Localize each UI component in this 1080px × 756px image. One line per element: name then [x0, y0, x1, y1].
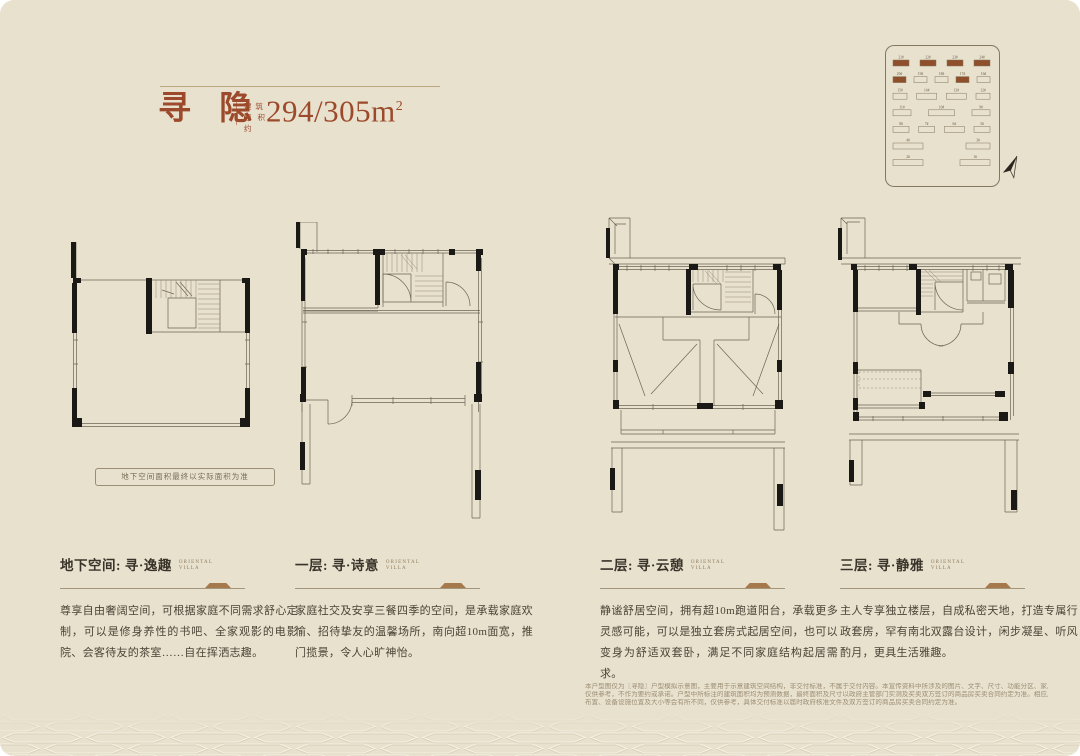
- section-rule: [295, 582, 480, 589]
- section-subtitle: ORIENTAL VILLA: [179, 560, 213, 572]
- rule-accent: [205, 583, 231, 588]
- wave-fade: [0, 710, 1080, 736]
- site-plan-building: [893, 110, 911, 116]
- section-rule: [600, 582, 785, 589]
- site-plan-building: [917, 93, 937, 99]
- site-plan-building: [974, 126, 990, 132]
- section-subtitle: ORIENTAL VILLA: [931, 560, 965, 572]
- compass-icon: [998, 151, 1027, 183]
- rule-accent: [985, 583, 1011, 588]
- section-title: 三层: 寻·静雅: [840, 558, 924, 574]
- site-plan-building: [966, 143, 990, 149]
- site-plan-diagram: 21#22#23#24#20#19#18#17#16#15#14#13#12#1…: [886, 46, 997, 184]
- area-label: 建 筑 面积约: [244, 101, 266, 134]
- rule-accent: [440, 583, 466, 588]
- section-subtitle: ORIENTAL VILLA: [691, 560, 725, 572]
- site-plan-building-label: 23#: [952, 56, 958, 60]
- site-plan-building-label: 7#: [925, 122, 929, 126]
- site-plan-building-label: 1#: [973, 155, 977, 159]
- header-rule: [160, 86, 440, 87]
- site-plan-building: [893, 60, 909, 66]
- site-plan-building: [893, 143, 923, 149]
- disclaimer-line: 本户型图仅为〖寻隐〗户型模拟示意图，主要用于示意建筑空间结构，非交付标准，不属于…: [585, 683, 1048, 691]
- site-plan-building: [893, 160, 923, 166]
- site-plan-building-label: 4#: [906, 139, 910, 143]
- rule-accent: [745, 583, 771, 588]
- site-plan-building: [893, 93, 907, 99]
- section-subtitle: ORIENTAL VILLA: [386, 560, 420, 572]
- section-level1: 一层: 寻·诗意 ORIENTAL VILLA 家庭社交及安享三餐四季的空间，是…: [295, 558, 533, 664]
- floor-plan-level1: [283, 222, 503, 547]
- site-plan-building-label: 22#: [925, 56, 931, 60]
- area-value: 294/305m2: [266, 90, 403, 128]
- site-plan-building-label: 20#: [897, 72, 903, 76]
- site-plan-building-label: 3#: [976, 139, 980, 143]
- site-plan-building-label: 18#: [939, 72, 945, 76]
- area-label-line2: 面积约: [244, 112, 266, 134]
- site-plan-building: [935, 77, 948, 83]
- site-plan-building: [946, 93, 966, 99]
- site-plan-building: [947, 60, 963, 66]
- site-plan-building-label: 2#: [906, 155, 910, 159]
- site-plan-building: [944, 126, 964, 132]
- site-plan-building: [929, 110, 955, 116]
- disclaimer: 本户型图仅为〖寻隐〗户型模拟示意图，主要用于示意建筑空间结构，非交付标准，不属于…: [585, 683, 1048, 706]
- section-rule: [840, 582, 1025, 589]
- section-basement: 地下空间: 寻·逸趣 ORIENTAL VILLA 尊享自由奢阔空间，可根据家庭…: [60, 558, 298, 664]
- site-plan-building-label: 8#: [899, 122, 903, 126]
- site-plan-building-label: 6#: [953, 122, 957, 126]
- section-level3: 三层: 寻·静雅 ORIENTAL VILLA 主人专享独立楼层，自成私密天地，…: [840, 558, 1078, 664]
- section-body: 主人专享独立楼层，自成私密天地，打造专属行政套房，罕有南北双露台设计，闲步凝星、…: [840, 601, 1078, 664]
- section-title: 地下空间: 寻·逸趣: [60, 558, 172, 574]
- site-plan-building-label: 14#: [924, 89, 930, 93]
- section-rule: [60, 582, 245, 589]
- site-plan-building: [893, 126, 909, 132]
- site-plan-building-label: 11#: [899, 105, 904, 109]
- site-plan-building: [976, 93, 990, 99]
- site-plan-building: [974, 60, 990, 66]
- section-body: 家庭社交及安享三餐四季的空间，是承载家庭欢愉、招待挚友的温馨场所，南向超10m面…: [295, 601, 533, 664]
- site-plan-building: [893, 77, 906, 83]
- site-plan-building: [960, 160, 990, 166]
- site-plan: 21#22#23#24#20#19#18#17#16#15#14#13#12#1…: [885, 45, 1000, 187]
- section-title: 二层: 寻·云憩: [600, 558, 684, 574]
- site-plan-building-label: 21#: [898, 56, 904, 60]
- area-superscript: 2: [396, 99, 404, 114]
- section-body: 静谧舒居空间，拥有超10m跑道阳台，承载更多灵感可能，可以是独立套房式起居空间，…: [600, 601, 838, 685]
- site-plan-building-label: 24#: [979, 56, 985, 60]
- title-divider: [236, 99, 237, 125]
- disclaimer-line: 布置、设备设施位置及大小等会有所不同，仅供参考，具体交付标准以届时政府核准文件及…: [585, 699, 1048, 707]
- site-plan-building-label: 19#: [918, 72, 924, 76]
- floor-plan-level3: [833, 212, 1058, 542]
- floor-plan-level2: [593, 212, 818, 542]
- disclaimer-line: 仅供参考，不作为要约或承诺。户型中所标注的建筑面积均为预测数据，最终面积及尺寸以…: [585, 691, 1048, 699]
- basement-note: 地下空间面积最终以实际面积为准: [95, 468, 275, 486]
- site-plan-building: [956, 77, 969, 83]
- site-plan-building-label: 10#: [939, 105, 945, 109]
- site-plan-building-label: 9#: [979, 105, 983, 109]
- site-plan-building-label: 15#: [897, 89, 903, 93]
- floor-plan-basement: [62, 240, 267, 435]
- site-plan-building: [977, 77, 990, 83]
- section-title: 一层: 寻·诗意: [295, 558, 379, 574]
- brochure-page: 寻 隐 建 筑 面积约 294/305m2 21#22#23#24#20#19#…: [0, 0, 1080, 756]
- site-plan-building-label: 13#: [954, 89, 960, 93]
- section-level2: 二层: 寻·云憩 ORIENTAL VILLA 静谧舒居空间，拥有超10m跑道阳…: [600, 558, 838, 685]
- site-plan-building-label: 5#: [980, 122, 984, 126]
- section-body: 尊享自由奢阔空间，可根据家庭不同需求舒心定制，可以是修身养性的书吧、全家观影的电…: [60, 601, 298, 664]
- site-plan-building-label: 17#: [960, 72, 966, 76]
- area-label-line1: 建 筑: [244, 101, 266, 112]
- site-plan-building-label: 16#: [981, 72, 987, 76]
- site-plan-building: [972, 110, 990, 116]
- site-plan-building: [919, 126, 935, 132]
- site-plan-building-label: 12#: [980, 89, 986, 93]
- site-plan-building: [914, 77, 927, 83]
- site-plan-building: [920, 60, 936, 66]
